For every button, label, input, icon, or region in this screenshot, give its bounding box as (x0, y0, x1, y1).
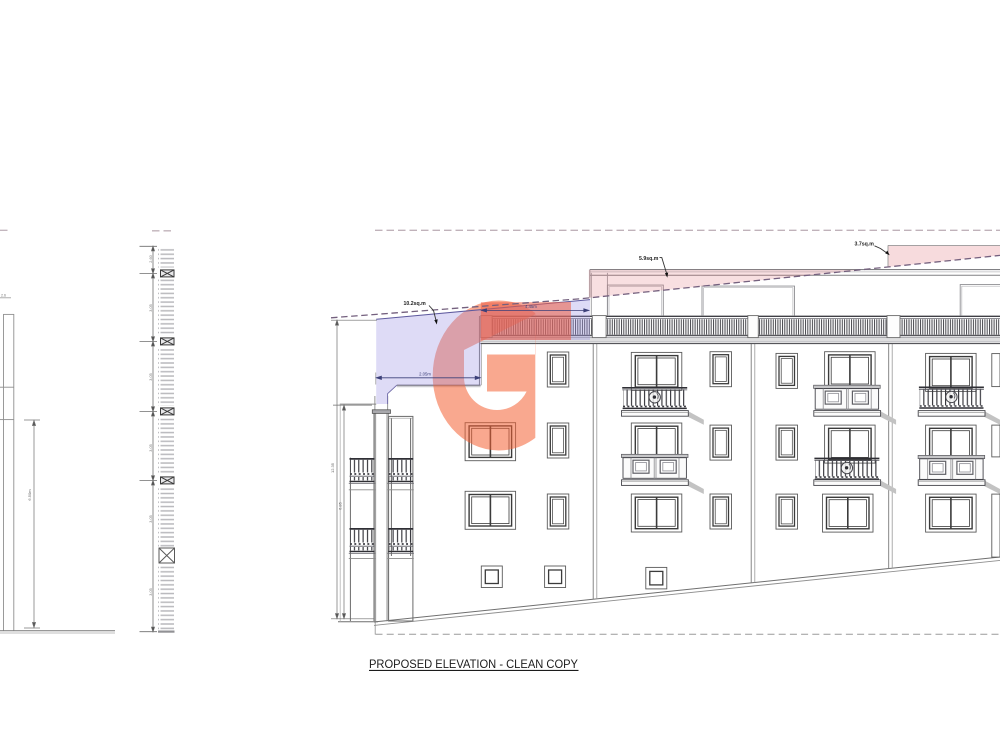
svg-text:3.05: 3.05 (149, 373, 153, 380)
svg-text:6.50m: 6.50m (27, 489, 32, 501)
svg-text:3.05: 3.05 (149, 515, 153, 522)
svg-text:3.05: 3.05 (149, 304, 153, 311)
svg-text:3.05: 3.05 (149, 444, 153, 451)
svg-text:PROPOSED ELEVATION - CLEAN COP: PROPOSED ELEVATION - CLEAN COPY (369, 658, 578, 671)
svg-text:3.7sq.m: 3.7sq.m (855, 241, 875, 247)
svg-text:5.9sq.m: 5.9sq.m (639, 256, 659, 262)
svg-text:10.2sq.m: 10.2sq.m (404, 301, 427, 307)
svg-text:12.35: 12.35 (330, 462, 335, 473)
svg-text:6.85: 6.85 (338, 501, 343, 510)
svg-text:3.05: 3.05 (149, 588, 153, 595)
svg-text:4.45m: 4.45m (525, 304, 537, 309)
svg-text:2.60: 2.60 (149, 255, 153, 262)
svg-text:2.05m: 2.05m (419, 372, 431, 377)
svg-text:2.6: 2.6 (1, 294, 6, 298)
